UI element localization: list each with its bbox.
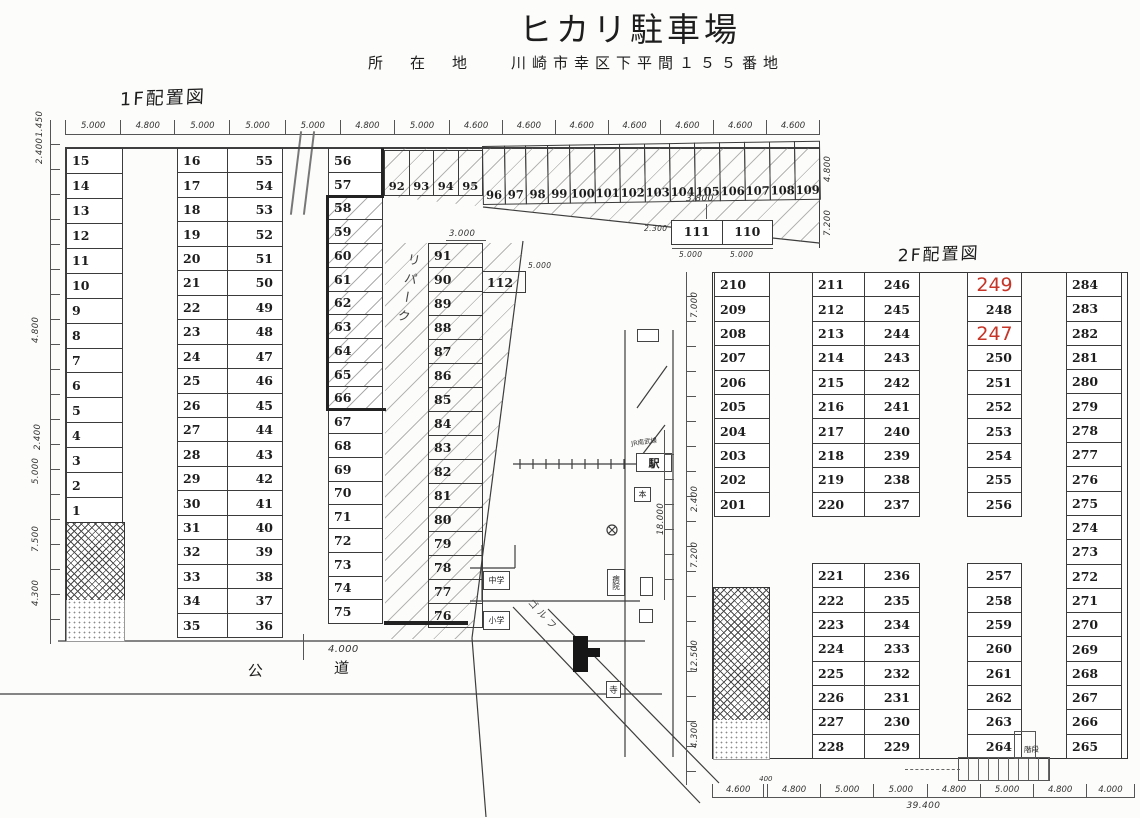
dim-segment: 4.800	[1033, 784, 1086, 797]
parking-stall: 85	[428, 387, 483, 412]
dim-label: 7.200	[690, 542, 700, 568]
floor2-column-a: 210209208207206205204203202201	[714, 272, 770, 517]
parking-stall: 80	[428, 507, 483, 532]
dim-label: 4.800	[823, 156, 833, 182]
parking-stall: 36	[227, 613, 283, 638]
parking-stall: 66	[328, 386, 383, 411]
parking-stall: 86	[428, 363, 483, 388]
dim-label: 2.300	[644, 224, 667, 233]
parking-stall: 254	[967, 443, 1022, 468]
lease-boundary	[381, 148, 384, 198]
parking-stall: 35	[177, 613, 228, 638]
map-box-temple: 寺	[606, 681, 621, 698]
parking-stall: 79	[428, 531, 483, 556]
parking-stall: 207	[714, 345, 770, 370]
dim-label: 1.450	[35, 111, 45, 137]
parking-stall: 283	[1066, 296, 1122, 321]
parking-stall: 260	[967, 636, 1022, 661]
parking-stall: 99	[547, 145, 571, 204]
stairs-leader	[905, 769, 960, 771]
parking-stall: 64	[328, 338, 383, 363]
address-label: 所 在 地	[368, 52, 473, 73]
parking-stall: 248	[967, 296, 1022, 321]
floor2-column-b: 211212213214215216217218219220 246245244…	[812, 272, 920, 517]
dim-segment: 4.800	[120, 120, 174, 134]
parking-stall: 210	[714, 272, 770, 297]
parking-stall: 252	[967, 394, 1022, 419]
dim-label: 18.000	[656, 503, 666, 535]
dim-label: 2.400	[690, 486, 700, 512]
parking-stall: 84	[428, 411, 483, 436]
parking-stall-112: 112	[482, 271, 526, 293]
parking-stall: 276	[1066, 466, 1122, 491]
dim-segment: 4.600	[502, 120, 555, 134]
parking-stall: 42	[227, 466, 283, 491]
parking-stall: 280	[1066, 369, 1122, 394]
map-box-hon: 本	[634, 487, 651, 502]
parking-stall: 27	[177, 417, 228, 442]
parking-stall: 259	[967, 612, 1022, 637]
floor2-column-b-right: 246245244243242241240239238237	[864, 272, 920, 517]
parking-stall: 253	[967, 418, 1022, 443]
dim-label: 5.000	[730, 250, 753, 259]
dim-segment: 4.600	[766, 120, 819, 134]
parking-stall: 243	[864, 345, 920, 370]
map-small-box	[639, 609, 653, 623]
dim-segment: 5.000	[394, 120, 449, 134]
parking-stall: 229	[864, 734, 920, 759]
parking-stall: 278	[1066, 418, 1122, 443]
floor1-row-92-95: 92939495	[385, 150, 483, 196]
parking-stall: 51	[227, 246, 283, 271]
total-width-label: 39.400	[712, 801, 1135, 811]
map-box-elementary: 小学	[483, 611, 510, 630]
parking-stall: 71	[328, 504, 383, 529]
parking-stall: 12	[66, 223, 123, 249]
parking-stall: 39	[227, 539, 283, 564]
parking-stall: 4	[66, 422, 123, 448]
map-small-box	[640, 577, 653, 596]
dim-segment: 4.000	[1086, 784, 1134, 797]
parking-stall: 261	[967, 661, 1022, 686]
parking-stall: 96	[482, 146, 506, 205]
parking-stall: 73	[328, 552, 383, 577]
parking-stall: 33	[177, 564, 228, 589]
parking-stall: 34	[177, 588, 228, 613]
parking-stall: 235	[864, 587, 920, 612]
parking-stall: 109	[794, 141, 821, 200]
parking-stall: 9	[66, 298, 123, 324]
parking-stall: 32	[177, 539, 228, 564]
floor1-left-dim-chain	[50, 120, 60, 644]
parking-stall: 91	[428, 243, 483, 268]
parking-stall: 267	[1066, 685, 1122, 710]
parking-stall: 20	[177, 246, 228, 271]
parking-stall: 216	[812, 394, 865, 419]
dim-label: 5.000	[679, 250, 702, 259]
parking-stall: 268	[1066, 661, 1122, 686]
parking-stall: 208	[714, 321, 770, 346]
parking-stall: 218	[812, 443, 865, 468]
parking-stall: 61	[328, 267, 383, 292]
stipple-block-1f	[66, 600, 125, 642]
parking-stall: 270	[1066, 612, 1122, 637]
parking-stall: 17	[177, 172, 228, 197]
parking-stall: 7	[66, 348, 123, 374]
dim-segment: 5.000	[980, 784, 1034, 797]
lease-boundary	[326, 195, 384, 198]
dim-segment: 5.000	[873, 784, 927, 797]
parking-stall: 19	[177, 221, 228, 246]
parking-stall: 266	[1066, 709, 1122, 734]
dim-leader	[706, 204, 707, 219]
floor1-column-d: 91908988878685848382818079787776	[428, 243, 483, 628]
parking-stall: 111	[671, 220, 723, 245]
floor2-column-b2-left: 221222223224225226227228	[812, 563, 865, 759]
parking-stall: 23	[177, 319, 228, 344]
parking-stall: 54	[227, 172, 283, 197]
floor1-title: 1F配置図	[119, 83, 206, 112]
parking-stall: 273	[1066, 539, 1122, 564]
parking-stall: 81	[428, 483, 483, 508]
floor1-column-c: 5657585960616263646566676869707172737475	[328, 148, 383, 624]
dim-segment: 5.000	[820, 784, 874, 797]
parking-stall: 93	[409, 150, 435, 196]
parking-stall: 279	[1066, 393, 1122, 418]
parking-stall: 284	[1066, 272, 1122, 297]
map-box-hospital: 病院	[607, 569, 625, 596]
parking-stall: 89	[428, 291, 483, 316]
parking-stall: 221	[812, 563, 865, 588]
address-row: 所 在 地 川崎市幸区下平間１５５番地	[368, 52, 784, 73]
floor2-column-c-bottom: 257258259260261262263264	[967, 563, 1022, 759]
parking-stall: 75	[328, 599, 383, 624]
parking-stall: 106	[719, 142, 746, 201]
lease-boundary	[326, 195, 329, 411]
parking-stall: 215	[812, 370, 865, 395]
lease-boundary	[384, 621, 468, 625]
parking-stall: 55	[227, 148, 283, 173]
parking-stall: 222	[812, 587, 865, 612]
parking-stall: 203	[714, 443, 770, 468]
parking-stall: 209	[714, 296, 770, 321]
floor1-boxes-111-110: 111110	[672, 220, 773, 245]
address-value: 川崎市幸区下平間１５５番地	[511, 52, 784, 73]
parking-stall: 50	[227, 270, 283, 295]
parking-stall: 10	[66, 273, 123, 299]
parking-stall: 65	[328, 362, 383, 387]
parking-stall: 82	[428, 459, 483, 484]
parking-stall: 214	[812, 345, 865, 370]
dim-label: 5.000	[528, 261, 551, 270]
parking-stall: 1	[66, 497, 123, 523]
parking-stall: 70	[328, 481, 383, 506]
parking-stall: 244	[864, 321, 920, 346]
dim-label: 7.500	[31, 526, 41, 552]
parking-stall: 233	[864, 636, 920, 661]
break-mark	[290, 131, 302, 215]
crosshatch-block-2f	[713, 587, 770, 722]
parking-stall: 102	[619, 143, 646, 202]
parking-stall: 45	[227, 393, 283, 418]
dim-segment: 4.600	[713, 120, 766, 134]
parking-stall: 265	[1066, 734, 1122, 759]
parking-stall: 236	[864, 563, 920, 588]
map-small-box	[637, 329, 659, 342]
parking-stall: 56	[328, 148, 383, 173]
parking-stall: 255	[967, 467, 1022, 492]
parking-stall: 212	[812, 296, 865, 321]
parking-stall: 53	[227, 197, 283, 222]
parking-stall: 224	[812, 636, 865, 661]
parking-stall: 47	[227, 344, 283, 369]
parking-stall: 38	[227, 564, 283, 589]
station-note: JR南武線	[630, 434, 657, 448]
parking-stall: 83	[428, 435, 483, 460]
parking-stall: 206	[714, 370, 770, 395]
dim-label: 4.300	[690, 722, 700, 748]
page-title: ヒカリ駐車場	[330, 3, 930, 51]
parking-stall: 28	[177, 441, 228, 466]
parking-stall: 68	[328, 433, 383, 458]
floor1-column-b-right: 5554535251504948474645444342414039383736	[227, 148, 283, 638]
dim-segment: 4.800	[927, 784, 980, 797]
survey-mark-icon	[607, 525, 617, 535]
parking-stall: 223	[812, 612, 865, 637]
dim-label: 4.300	[31, 580, 41, 606]
site-building-mark	[573, 636, 588, 672]
parking-stall: 271	[1066, 588, 1122, 613]
dim-segment: 4.600	[712, 784, 763, 797]
road-width-label: 4.000	[328, 644, 359, 655]
parking-stall: 87	[428, 339, 483, 364]
floor1-row-96-109: 96979899100101102103104105106107108109	[483, 141, 821, 205]
parking-stall: 204	[714, 418, 770, 443]
floor2-column-d: 2842832822812802792782772762752742732722…	[1066, 272, 1122, 759]
parking-stall: 230	[864, 709, 920, 734]
parking-stall: 246	[864, 272, 920, 297]
parking-stall: 48	[227, 319, 283, 344]
parking-stall: 24	[177, 344, 228, 369]
break-mark	[303, 131, 315, 215]
parking-stall: 22	[177, 295, 228, 320]
parking-stall: 275	[1066, 491, 1122, 516]
floor2-left-dim-chain	[686, 272, 696, 785]
parking-stall: 245	[864, 296, 920, 321]
parking-stall: 202	[714, 467, 770, 492]
floor1-column-b-left: 1617181920212223242526272829303132333435	[177, 148, 228, 638]
parking-stall: 256	[967, 492, 1022, 517]
parking-stall: 201	[714, 492, 770, 517]
golf-label: ゴルフ	[525, 595, 563, 634]
dim-label: 7.200	[823, 210, 833, 236]
parking-stall: 58	[328, 196, 383, 221]
parking-stall: 239	[864, 443, 920, 468]
dim-label: 3.000	[449, 229, 475, 239]
dim-segment: 5.000	[65, 120, 120, 134]
parking-stall: 29	[177, 466, 228, 491]
road-label: 公 道	[247, 656, 377, 681]
parking-stall: 8	[66, 323, 123, 349]
parking-stall: 258	[967, 587, 1022, 612]
floor1-column-b: 1617181920212223242526272829303132333435…	[177, 148, 283, 638]
parking-stall: 103	[644, 143, 671, 202]
parking-stall: 26	[177, 393, 228, 418]
parking-stall: 92	[384, 150, 410, 196]
parking-stall: 211	[812, 272, 865, 297]
parking-stall: 62	[328, 291, 383, 316]
stairs-icon	[958, 757, 1050, 781]
floor2-column-b-left: 211212213214215216217218219220	[812, 272, 865, 517]
parking-stall: 231	[864, 685, 920, 710]
parking-stall: 237	[864, 492, 920, 517]
dim-label: 12.500	[690, 640, 700, 672]
dim-line	[446, 240, 486, 241]
dim-segment: 4.600	[555, 120, 608, 134]
floor2-title: 2F配置図	[897, 239, 980, 267]
dim-segment: 5.000	[229, 120, 284, 134]
parking-stall: 2	[66, 472, 123, 498]
parking-stall: 25	[177, 368, 228, 393]
parking-stall: 241	[864, 394, 920, 419]
dim-label: 2.400	[35, 138, 45, 164]
parking-stall: 15	[66, 148, 123, 174]
parking-stall: 37	[227, 588, 283, 613]
parking-stall: 269	[1066, 636, 1122, 661]
parking-stall: 240	[864, 418, 920, 443]
parking-stall: 213	[812, 321, 865, 346]
parking-stall: 57	[328, 172, 383, 197]
parking-stall: 282	[1066, 321, 1122, 346]
parking-stall: 46	[227, 368, 283, 393]
parking-stall: 205	[714, 394, 770, 419]
dim-label: 5.000	[31, 458, 41, 484]
dim-label: 4.800	[31, 317, 41, 343]
parking-stall: 238	[864, 467, 920, 492]
parking-stall: 13	[66, 198, 123, 224]
parking-stall: 6	[66, 372, 123, 398]
parking-stall: 16	[177, 148, 228, 173]
parking-stall: 63	[328, 314, 383, 339]
parking-stall: 95	[458, 150, 484, 196]
floor2-bottom-dim-chain: 4.6004004.8005.0005.0004.8005.0004.8004.…	[712, 784, 1135, 798]
floor2-column-b2-right: 236235234233232231230229	[864, 563, 920, 759]
parking-stall: 60	[328, 243, 383, 268]
dim-label: 3.800	[686, 194, 714, 204]
floor1-top-dim-chain: 5.0004.8005.0005.0005.0004.8005.0004.600…	[65, 120, 820, 135]
map-box-junior-high: 中学	[483, 571, 510, 590]
dim-segment: 5.000	[174, 120, 229, 134]
road-dim-tick	[303, 634, 304, 660]
parking-stall: 257	[967, 563, 1022, 588]
parking-stall: 11	[66, 248, 123, 274]
parking-stall: 41	[227, 490, 283, 515]
parking-stall: 234	[864, 612, 920, 637]
parking-stall: 108	[769, 141, 796, 200]
parking-stall: 49	[227, 295, 283, 320]
dim-segment: 4.800	[340, 120, 394, 134]
parking-stall: 18	[177, 197, 228, 222]
parking-stall: 3	[66, 447, 123, 473]
parking-stall: 74	[328, 576, 383, 601]
parking-stall: 88	[428, 315, 483, 340]
parking-stall: 281	[1066, 345, 1122, 370]
dim-segment: 4.600	[660, 120, 713, 134]
parking-stall: 251	[967, 370, 1022, 395]
dim-segment: 4.600	[449, 120, 502, 134]
stairs-label: 階段	[1024, 744, 1040, 756]
parking-stall: 90	[428, 267, 483, 292]
parking-stall: 69	[328, 457, 383, 482]
floor1-column-a: 151413121110987654321	[66, 148, 123, 523]
dim-line	[672, 248, 773, 249]
parking-stall: 97	[504, 145, 528, 204]
parking-stall: 242	[864, 370, 920, 395]
parking-stall: 14	[66, 173, 123, 199]
parking-stall: 272	[1066, 564, 1122, 589]
parking-stall: 274	[1066, 515, 1122, 540]
parking-stall: 105	[694, 142, 721, 201]
parking-stall: 110	[722, 220, 774, 245]
parking-stall: 59	[328, 219, 383, 244]
parking-stall: 78	[428, 555, 483, 580]
stipple-block-2f	[713, 720, 770, 760]
parking-stall: 277	[1066, 442, 1122, 467]
parking-stall: 77	[428, 579, 483, 604]
parking-stall: 247	[967, 321, 1022, 346]
parking-stall: 21	[177, 270, 228, 295]
parking-stall: 228	[812, 734, 865, 759]
dim-label: 2.400	[33, 424, 43, 450]
parking-stall: 31	[177, 515, 228, 540]
parking-stall: 107	[744, 141, 771, 200]
parking-stall: 100	[569, 144, 596, 203]
parking-stall: 5	[66, 397, 123, 423]
crosshatch-block-1f	[66, 522, 125, 602]
parking-stall: 30	[177, 490, 228, 515]
parking-stall: 40	[227, 515, 283, 540]
parking-stall: 98	[525, 145, 549, 204]
parking-stall: 232	[864, 661, 920, 686]
parking-stall: 94	[433, 150, 459, 196]
parking-stall: 262	[967, 685, 1022, 710]
dim-label: 7.000	[690, 292, 700, 318]
lease-boundary	[326, 408, 386, 411]
parking-stall: 44	[227, 417, 283, 442]
parking-stall: 220	[812, 492, 865, 517]
floor2-column-c-top: 249248247250251252253254255256	[967, 272, 1022, 517]
parking-stall: 225	[812, 661, 865, 686]
parking-stall: 72	[328, 528, 383, 553]
parking-stall: 219	[812, 467, 865, 492]
parking-stall: 43	[227, 441, 283, 466]
parking-stall: 67	[328, 409, 383, 434]
parking-stall: 226	[812, 685, 865, 710]
parking-layout-sheet: ヒカリ駐車場 所 在 地 川崎市幸区下平間１５５番地	[0, 0, 1140, 818]
parking-stall: 101	[594, 144, 621, 203]
dim-segment: 4.600	[608, 120, 661, 134]
parking-stall: 250	[967, 345, 1022, 370]
railway-ticks	[520, 459, 637, 469]
parking-stall: 217	[812, 418, 865, 443]
dim-segment: 4.800	[767, 784, 820, 797]
parking-stall: 227	[812, 709, 865, 734]
parking-stall: 52	[227, 221, 283, 246]
parking-stall: 249	[967, 272, 1022, 297]
floor2-column-b-lower: 221222223224225226227228 236235234233232…	[812, 563, 920, 759]
